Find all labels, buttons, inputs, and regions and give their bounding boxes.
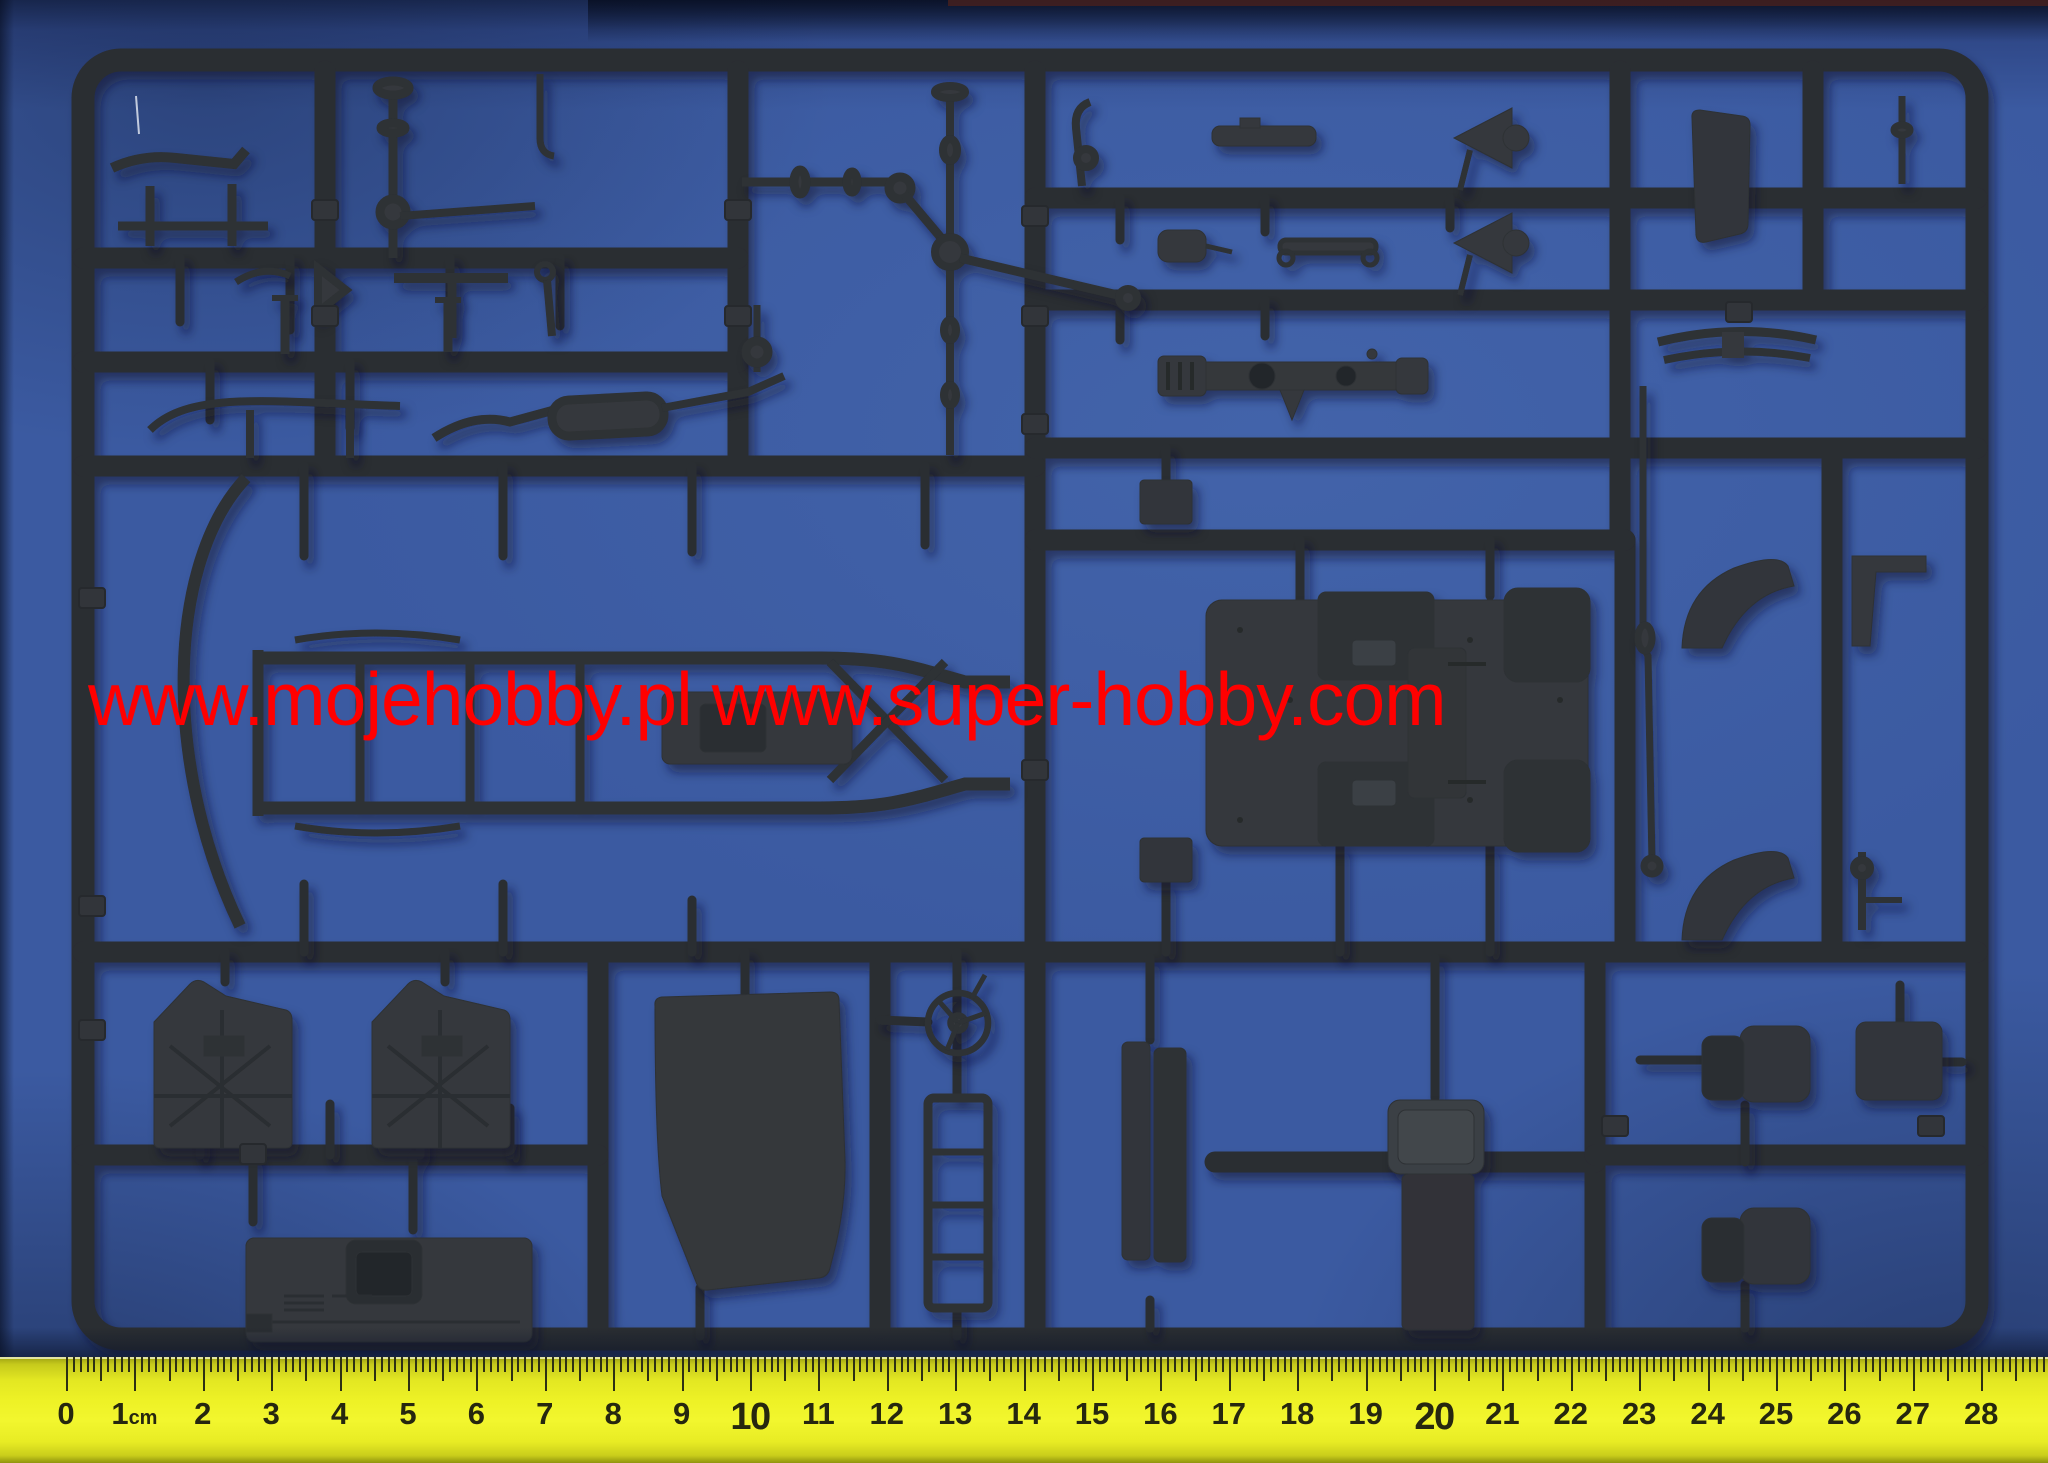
- ruler-tick: [107, 1357, 109, 1372]
- ruler-number: 22: [1554, 1398, 1588, 1429]
- ruler-number: 24: [1690, 1398, 1724, 1429]
- ruler-tick: [210, 1357, 212, 1372]
- ruler-tick: [736, 1357, 738, 1372]
- ruler-tick: [1537, 1357, 1539, 1381]
- ruler-number: 19: [1348, 1398, 1382, 1429]
- ruler-tick: [524, 1357, 526, 1372]
- ruler-tick: [264, 1357, 266, 1372]
- ruler-tick: [141, 1357, 143, 1372]
- part-floor-plate: [1856, 1022, 1942, 1100]
- part-propshaft: [1638, 386, 1660, 874]
- ruler-tick: [634, 1357, 636, 1372]
- ruler-tick: [1181, 1357, 1183, 1372]
- ruler-tick: [1680, 1357, 1682, 1372]
- ruler-tick: [100, 1357, 102, 1381]
- ruler-tick: [1660, 1357, 1662, 1372]
- ruler-tick: [87, 1357, 89, 1372]
- ruler-tick: [1263, 1357, 1265, 1381]
- ruler-tick: [2002, 1357, 2004, 1372]
- ruler-tick: [935, 1357, 937, 1372]
- ruler-tick: [1605, 1357, 1607, 1381]
- ruler-tick: [394, 1357, 396, 1372]
- ruler-tick: [1865, 1357, 1867, 1372]
- ruler-tick: [1024, 1357, 1026, 1391]
- ruler-number: 6: [468, 1398, 485, 1429]
- ruler-tick: [1749, 1357, 1751, 1372]
- ruler-tick: [1427, 1357, 1429, 1372]
- ruler-tick: [552, 1357, 554, 1372]
- ruler-tick: [1653, 1357, 1655, 1372]
- ruler-tick: [1058, 1357, 1060, 1381]
- ruler-tick: [996, 1357, 998, 1372]
- ruler-tick: [1790, 1357, 1792, 1372]
- ruler-tick: [1879, 1357, 1881, 1381]
- ruler-tick: [1988, 1357, 1990, 1372]
- ruler-tick: [1516, 1357, 1518, 1372]
- ruler-tick: [606, 1357, 608, 1372]
- ruler: 01cm234567891011121314151617181920212223…: [0, 1357, 2048, 1463]
- ruler-tick: [271, 1357, 273, 1391]
- ruler-tick: [360, 1357, 362, 1372]
- ruler-tick: [1502, 1357, 1504, 1391]
- ruler-tick: [134, 1357, 136, 1391]
- ruler-tick: [305, 1357, 307, 1381]
- ruler-number: 18: [1280, 1398, 1314, 1429]
- ruler-tick: [470, 1357, 472, 1372]
- ruler-tick: [675, 1357, 677, 1372]
- ruler-tick: [976, 1357, 978, 1372]
- ruler-tick: [1304, 1357, 1306, 1372]
- ruler-tick: [1523, 1357, 1525, 1372]
- part-leaf-springs: [1658, 331, 1816, 360]
- ruler-tick: [1824, 1357, 1826, 1372]
- ruler-tick: [1954, 1357, 1956, 1372]
- ruler-tick: [237, 1357, 239, 1381]
- ruler-tick: [1331, 1357, 1333, 1381]
- ruler-tick: [1133, 1357, 1135, 1372]
- ruler-number: 0: [57, 1398, 74, 1429]
- ruler-tick: [1386, 1357, 1388, 1372]
- ruler-tick: [620, 1357, 622, 1372]
- ruler-tick: [1571, 1357, 1573, 1391]
- ruler-tick: [1318, 1357, 1320, 1372]
- ruler-tick: [1188, 1357, 1190, 1372]
- ruler-tick: [1119, 1357, 1121, 1372]
- ruler-tick: [654, 1357, 656, 1372]
- ruler-number: 21: [1485, 1398, 1519, 1429]
- ruler-tick: [374, 1357, 376, 1381]
- ruler-tick: [723, 1357, 725, 1372]
- ruler-tick: [695, 1357, 697, 1372]
- part-front-axle-beam: [1158, 349, 1428, 420]
- ruler-tick: [1769, 1357, 1771, 1372]
- ruler-tick: [2015, 1357, 2017, 1381]
- ruler-tick: [1803, 1357, 1805, 1372]
- ruler-tick: [1646, 1357, 1648, 1372]
- ruler-tick: [1489, 1357, 1491, 1372]
- ruler-tick: [93, 1357, 95, 1372]
- part-suspension-arms: [112, 150, 268, 246]
- ruler-tick: [1509, 1357, 1511, 1372]
- ruler-tick: [1448, 1357, 1450, 1372]
- ruler-tick: [1564, 1357, 1566, 1372]
- ruler-tick: [1140, 1357, 1142, 1372]
- ruler-tick: [613, 1357, 615, 1391]
- ruler-tick: [730, 1357, 732, 1372]
- ruler-tick: [346, 1357, 348, 1372]
- ruler-tick: [1626, 1357, 1628, 1372]
- ruler-tick: [545, 1357, 547, 1391]
- ruler-tick: [1099, 1357, 1101, 1372]
- ruler-tick: [1468, 1357, 1470, 1381]
- ruler-tick: [1243, 1357, 1245, 1372]
- part-horn-cone-2: [1454, 213, 1529, 295]
- ruler-tick: [155, 1357, 157, 1372]
- ruler-tick: [189, 1357, 191, 1372]
- ruler-tick: [1037, 1357, 1039, 1372]
- ruler-tick: [668, 1357, 670, 1372]
- ruler-tick: [1236, 1357, 1238, 1372]
- ruler-tick: [258, 1357, 260, 1372]
- ruler-tick: [866, 1357, 868, 1372]
- ruler-tick: [66, 1357, 68, 1391]
- ruler-tick: [1297, 1357, 1299, 1391]
- ruler-tick: [80, 1357, 82, 1372]
- ruler-tick: [1974, 1357, 1976, 1372]
- ruler-tick: [1913, 1357, 1915, 1391]
- ruler-tick: [1762, 1357, 1764, 1372]
- ruler-tick: [299, 1357, 301, 1372]
- ruler-tick: [907, 1357, 909, 1372]
- ruler-tick: [572, 1357, 574, 1372]
- ruler-tick: [1947, 1357, 1949, 1381]
- ruler-tick: [1249, 1357, 1251, 1372]
- ruler-number: 7: [536, 1398, 553, 1429]
- ruler-tick: [497, 1357, 499, 1372]
- ruler-tick: [1455, 1357, 1457, 1372]
- ruler-tick: [1701, 1357, 1703, 1372]
- ruler-number: 1cm: [111, 1398, 157, 1429]
- ruler-tick: [1530, 1357, 1532, 1372]
- ruler-tick: [1010, 1357, 1012, 1372]
- ruler-tick: [483, 1357, 485, 1372]
- part-horn-cone-1: [1454, 108, 1529, 190]
- ruler-tick: [244, 1357, 246, 1372]
- ruler-number: 3: [263, 1398, 280, 1429]
- ruler-tick: [169, 1357, 171, 1381]
- ruler-tick: [1174, 1357, 1176, 1372]
- ruler-tick: [771, 1357, 773, 1372]
- ruler-tick: [1441, 1357, 1443, 1372]
- ruler-tick: [319, 1357, 321, 1372]
- ruler-tick: [1078, 1357, 1080, 1372]
- part-sill-panel: [1122, 1042, 1186, 1262]
- part-firewall-bulkhead-2: [372, 980, 510, 1148]
- ruler-tick: [1256, 1357, 1258, 1372]
- ruler-tick: [1222, 1357, 1224, 1372]
- ruler-tick: [203, 1357, 205, 1391]
- ruler-tick: [388, 1357, 390, 1372]
- ruler-number: 12: [870, 1398, 904, 1429]
- ruler-tick: [333, 1357, 335, 1372]
- ruler-tick: [969, 1357, 971, 1372]
- ruler-tick: [1106, 1357, 1108, 1372]
- ruler-tick: [1434, 1357, 1436, 1391]
- ruler-tick: [1229, 1357, 1231, 1391]
- ruler-tick: [292, 1357, 294, 1372]
- ruler-number: 17: [1212, 1398, 1246, 1429]
- watermark-text: www.mojehobby.pl www.super-hobby.com: [88, 662, 1446, 737]
- part-mirror-panel: [1692, 110, 1750, 242]
- part-seat-2: [1702, 1208, 1810, 1284]
- ruler-tick: [1591, 1357, 1593, 1372]
- ruler-tick: [1694, 1357, 1696, 1372]
- ruler-number: 9: [673, 1398, 690, 1429]
- ruler-tick: [784, 1357, 786, 1381]
- part-driveshaft-left: [377, 74, 948, 258]
- ruler-tick: [1728, 1357, 1730, 1372]
- ruler-tick: [559, 1357, 561, 1372]
- ruler-tick: [928, 1357, 930, 1372]
- ruler-tick: [1475, 1357, 1477, 1372]
- ruler-number: 5: [399, 1398, 416, 1429]
- ruler-tick: [1810, 1357, 1812, 1381]
- ruler-tick: [504, 1357, 506, 1372]
- ruler-tick: [490, 1357, 492, 1372]
- ruler-number: 4: [331, 1398, 348, 1429]
- ruler-tick: [1831, 1357, 1833, 1372]
- ruler-number: 16: [1143, 1398, 1177, 1429]
- ruler-tick: [702, 1357, 704, 1372]
- ruler-tick: [1277, 1357, 1279, 1372]
- part-fender-arch-1: [1682, 559, 1794, 648]
- ruler-tick: [1420, 1357, 1422, 1372]
- ruler-tick: [1906, 1357, 1908, 1372]
- ruler-tick: [593, 1357, 595, 1372]
- ruler-tick: [1345, 1357, 1347, 1372]
- ruler-tick: [531, 1357, 533, 1372]
- ruler-tick: [1208, 1357, 1210, 1372]
- ruler-tick: [442, 1357, 444, 1381]
- photo-model-kit-sprue: www.mojehobby.pl www.super-hobby.com 01c…: [0, 0, 2048, 1463]
- ruler-tick: [1359, 1357, 1361, 1372]
- ruler-tick: [805, 1357, 807, 1372]
- ruler-tick: [1858, 1357, 1860, 1372]
- ruler-tick: [825, 1357, 827, 1372]
- ruler-tick: [1147, 1357, 1149, 1372]
- ruler-tick: [1550, 1357, 1552, 1372]
- ruler-tick: [1892, 1357, 1894, 1372]
- ruler-tick: [1708, 1357, 1710, 1391]
- ruler-number: 8: [605, 1398, 622, 1429]
- ruler-tick: [1270, 1357, 1272, 1372]
- ruler-number: 15: [1075, 1398, 1109, 1429]
- part-stabilizer-bar: [150, 401, 400, 458]
- ruler-tick: [2029, 1357, 2031, 1372]
- ruler-tick: [1496, 1357, 1498, 1372]
- ruler-tick: [1167, 1357, 1169, 1372]
- ruler-tick: [600, 1357, 602, 1372]
- ruler-tick: [1981, 1357, 1983, 1391]
- ruler-number: 27: [1896, 1398, 1930, 1429]
- ruler-tick: [1632, 1357, 1634, 1372]
- ruler-tick: [196, 1357, 198, 1372]
- ruler-tick: [381, 1357, 383, 1372]
- ruler-tick: [456, 1357, 458, 1372]
- ruler-tick: [1393, 1357, 1395, 1372]
- ruler-tick: [128, 1357, 130, 1372]
- ruler-tick: [1325, 1357, 1327, 1372]
- ruler-tick: [798, 1357, 800, 1372]
- ruler-tick: [1284, 1357, 1286, 1372]
- ruler-tick: [1714, 1357, 1716, 1372]
- ruler-tick: [278, 1357, 280, 1372]
- ruler-tick: [1578, 1357, 1580, 1372]
- ruler-tick: [942, 1357, 944, 1372]
- ruler-tick: [1414, 1357, 1416, 1372]
- ruler-tick: [1598, 1357, 1600, 1372]
- ruler-tick: [750, 1357, 752, 1391]
- ruler-tick: [873, 1357, 875, 1372]
- ruler-tick: [1933, 1357, 1935, 1372]
- ruler-tick: [326, 1357, 328, 1372]
- ruler-tick: [743, 1357, 745, 1372]
- part-bracket-bottom: [1854, 852, 1902, 930]
- ruler-tick: [2043, 1357, 2045, 1372]
- part-tailgate: [246, 1238, 532, 1342]
- ruler-tick: [839, 1357, 841, 1372]
- ruler-tick: [340, 1357, 342, 1391]
- part-wiper-bar: [1279, 240, 1377, 265]
- ruler-tick: [1126, 1357, 1128, 1381]
- part-hood-panel: [655, 992, 845, 1290]
- ruler-tick: [1817, 1357, 1819, 1372]
- ruler-tick: [1372, 1357, 1374, 1372]
- ruler-tick: [1995, 1357, 1997, 1372]
- ruler-tick: [1366, 1357, 1368, 1391]
- ruler-tick: [880, 1357, 882, 1372]
- ruler-number: 20: [1414, 1398, 1453, 1436]
- ruler-tick: [647, 1357, 649, 1381]
- ruler-tick: [1735, 1357, 1737, 1372]
- ruler-tick: [1154, 1357, 1156, 1372]
- part-mirror-head: [1158, 230, 1232, 262]
- ruler-tick: [586, 1357, 588, 1372]
- ruler-tick: [757, 1357, 759, 1372]
- ruler-tick: [182, 1357, 184, 1372]
- ruler-tick: [285, 1357, 287, 1372]
- ruler-tick: [1160, 1357, 1162, 1391]
- ruler-tick: [921, 1357, 923, 1381]
- ruler-tick: [1797, 1357, 1799, 1372]
- ruler-tick: [859, 1357, 861, 1372]
- ruler-tick: [1065, 1357, 1067, 1372]
- ruler-tick: [948, 1357, 950, 1372]
- ruler-tick: [812, 1357, 814, 1372]
- ruler-tick: [1742, 1357, 1744, 1381]
- ruler-tick: [688, 1357, 690, 1372]
- ruler-tick: [73, 1357, 75, 1372]
- ruler-tick: [2022, 1357, 2024, 1372]
- ruler-tick: [1030, 1357, 1032, 1372]
- ruler-tick: [894, 1357, 896, 1372]
- ruler-number: 23: [1622, 1398, 1656, 1429]
- ruler-tick: [1543, 1357, 1545, 1372]
- ruler-tick: [121, 1357, 123, 1372]
- ruler-tick: [579, 1357, 581, 1381]
- ruler-tick: [832, 1357, 834, 1372]
- ruler-tick: [1072, 1357, 1074, 1372]
- ruler-tick: [1619, 1357, 1621, 1372]
- ruler-tick: [1017, 1357, 1019, 1372]
- ruler-tick: [230, 1357, 232, 1372]
- ruler-tick: [1461, 1357, 1463, 1372]
- mat-bottom-shadow: [0, 1328, 2048, 1357]
- ruler-tick: [901, 1357, 903, 1372]
- ruler-tick: [1783, 1357, 1785, 1372]
- ruler-tick: [777, 1357, 779, 1372]
- ruler-tick: [1673, 1357, 1675, 1381]
- ruler-tick: [429, 1357, 431, 1372]
- ruler-tick: [162, 1357, 164, 1372]
- ruler-tick: [449, 1357, 451, 1372]
- ruler-tick: [1085, 1357, 1087, 1372]
- part-pipe-elbow-1: [1076, 102, 1095, 186]
- ruler-tick: [1961, 1357, 1963, 1372]
- part-seat-box: [1388, 1100, 1484, 1330]
- ruler-tick: [1940, 1357, 1942, 1372]
- ruler-tick: [1379, 1357, 1381, 1372]
- ruler-tick: [818, 1357, 820, 1391]
- ruler-tick: [538, 1357, 540, 1372]
- ruler-tick: [1195, 1357, 1197, 1381]
- ruler-tick: [476, 1357, 478, 1391]
- ruler-tick: [353, 1357, 355, 1372]
- ruler-tick: [955, 1357, 957, 1391]
- ruler-tick: [853, 1357, 855, 1381]
- ruler-tick: [1721, 1357, 1723, 1372]
- part-top-bracket-bar: [1212, 118, 1316, 146]
- ruler-tick: [1044, 1357, 1046, 1372]
- ruler-number: 28: [1964, 1398, 1998, 1429]
- ruler-tick: [764, 1357, 766, 1372]
- ruler-tick: [1338, 1357, 1340, 1372]
- ruler-tick: [641, 1357, 643, 1372]
- ruler-number: 2: [194, 1398, 211, 1429]
- ruler-tick: [251, 1357, 253, 1372]
- ruler-number: 10: [730, 1398, 769, 1436]
- ruler-tick: [1215, 1357, 1217, 1372]
- ruler-number: 26: [1827, 1398, 1861, 1429]
- ruler-tick: [983, 1357, 985, 1372]
- ruler-number: 11: [802, 1398, 835, 1429]
- part-plate-square-a: [1140, 480, 1192, 524]
- part-bracket-top: [1852, 556, 1926, 646]
- ruler-tick: [517, 1357, 519, 1372]
- ruler-tick: [1838, 1357, 1840, 1372]
- ruler-tick: [223, 1357, 225, 1372]
- ruler-tick: [1639, 1357, 1641, 1391]
- ruler-tick: [887, 1357, 889, 1391]
- part-plate-square-b: [1140, 838, 1192, 882]
- ruler-tick: [175, 1357, 177, 1372]
- ruler-tick: [1092, 1357, 1094, 1391]
- ruler-tick: [2009, 1357, 2011, 1372]
- ruler-tick: [1201, 1357, 1203, 1372]
- part-seat-1: [1702, 1026, 1810, 1102]
- ruler-tick: [709, 1357, 711, 1372]
- ruler-tick: [217, 1357, 219, 1372]
